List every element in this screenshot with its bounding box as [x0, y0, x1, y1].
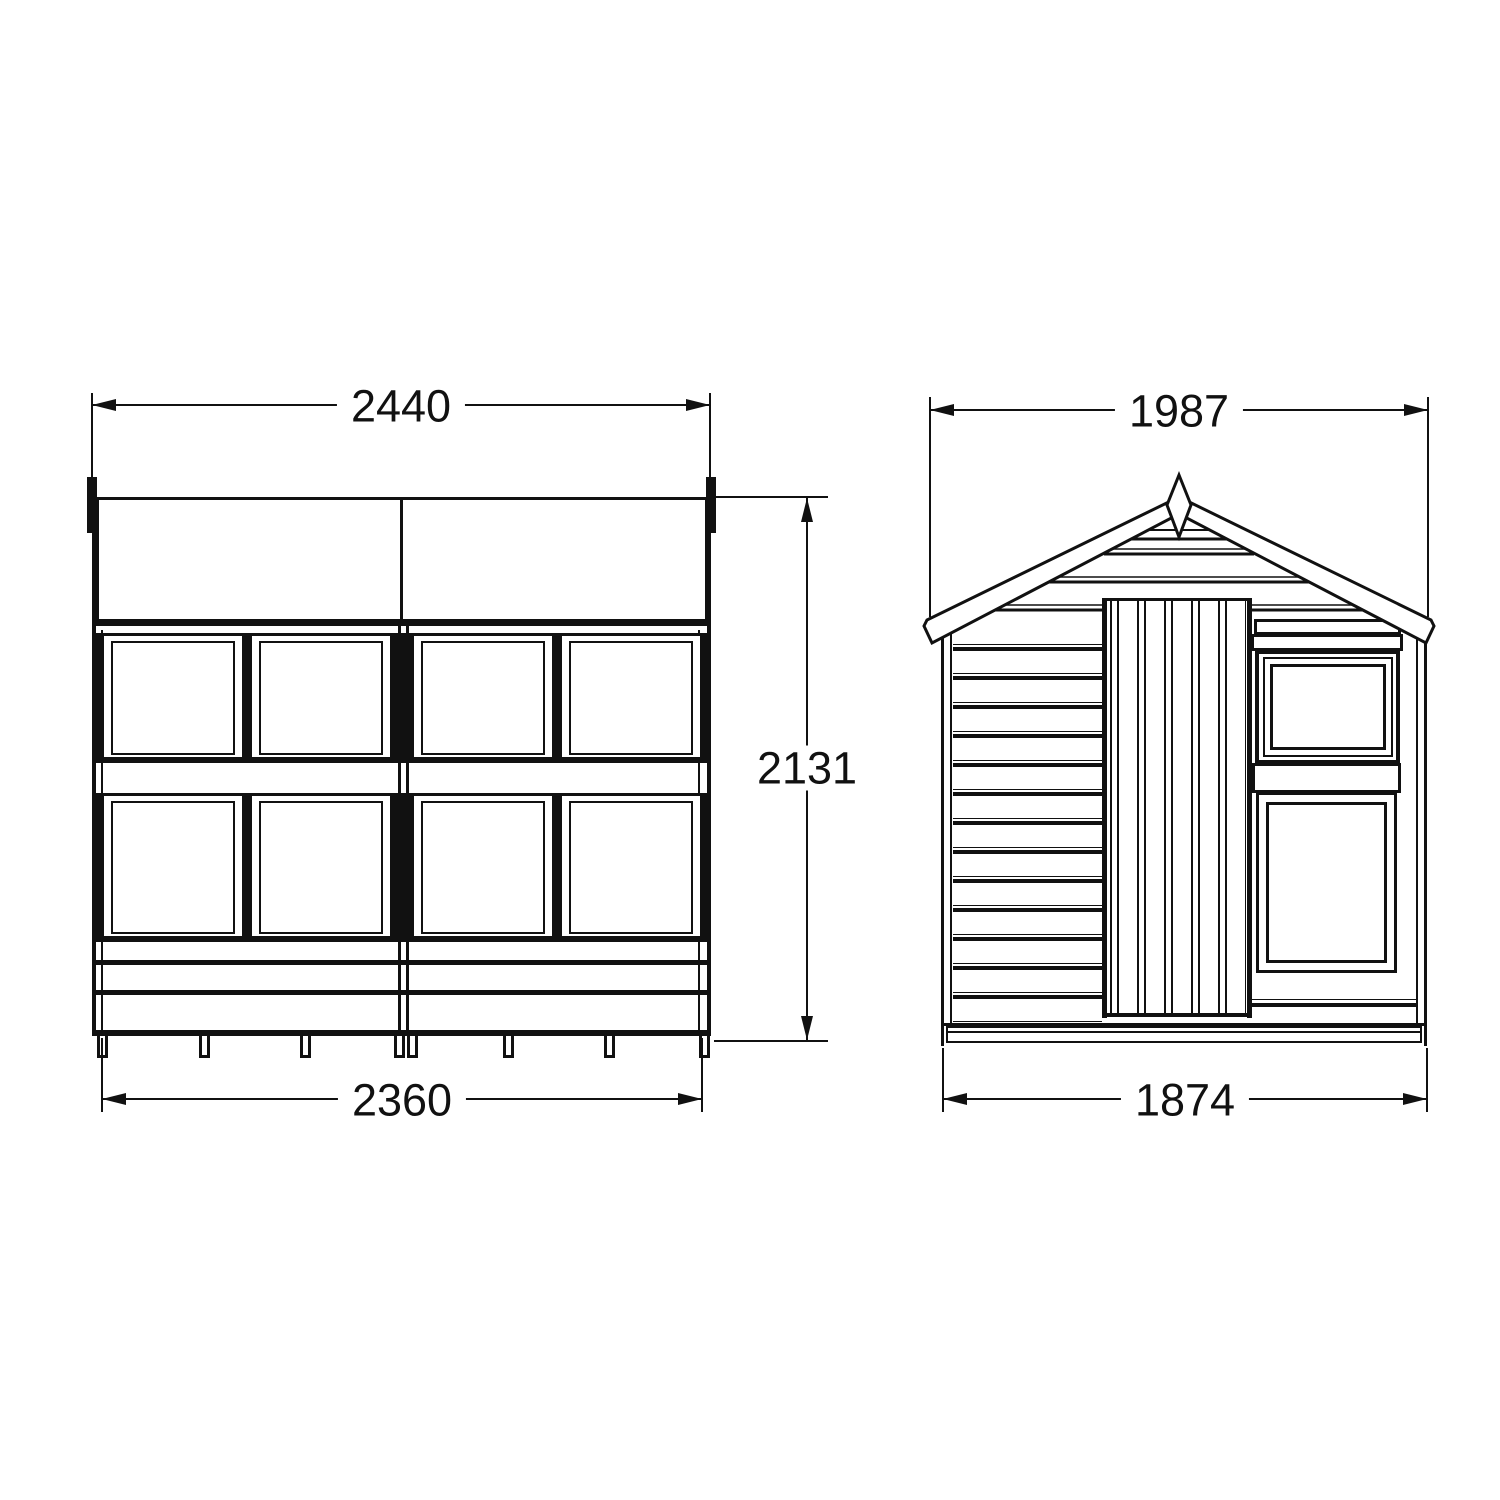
window-rail [1252, 763, 1401, 793]
dimension-arrow [678, 1093, 702, 1105]
window-mullion [242, 793, 252, 942]
dimension-arrow [943, 1093, 967, 1105]
extension-line [714, 1040, 828, 1042]
cladding-board-line [1252, 999, 1416, 1000]
wall-edge-left-inner [950, 624, 952, 1026]
window-stile [700, 793, 708, 942]
window-centre-post [390, 633, 414, 763]
dimension-arrow [686, 399, 710, 411]
dimension-arrow [1404, 404, 1428, 416]
wall-edge-left [941, 620, 944, 1026]
dim-width-bottom: 1874 [1121, 1078, 1249, 1123]
wall-edge-right [1424, 620, 1427, 1026]
bearer-foot [300, 1036, 311, 1058]
base-corner-stub [941, 1026, 944, 1046]
gable-roof [900, 455, 1460, 670]
centre-divider [406, 626, 409, 1036]
window-pane [259, 641, 383, 755]
base-corner-stub [1424, 1026, 1427, 1046]
dim-width-top: 1987 [1115, 389, 1243, 434]
base-rail [946, 1026, 1422, 1043]
bearer-foot [604, 1036, 615, 1058]
dim-height: 2131 [743, 746, 871, 791]
base-rail-line [948, 1031, 1420, 1033]
cladding-board-line [96, 990, 708, 995]
dim-width-bottom: 2360 [338, 1078, 466, 1123]
centre-divider [398, 626, 401, 1036]
window-pane [111, 641, 235, 755]
dimension-arrow [801, 498, 813, 522]
window-centre-post [390, 793, 414, 942]
bargeboard-right [1179, 497, 1434, 643]
bearer-foot [503, 1036, 514, 1058]
wall-edge-right-inner [1416, 624, 1418, 1026]
window-pane [569, 801, 693, 934]
window-stile [96, 793, 104, 942]
dimension-arrow [92, 399, 116, 411]
roof-finial [1167, 475, 1191, 537]
door-sill [1102, 1013, 1252, 1017]
window-stile [96, 633, 104, 763]
cladding-board-line [1252, 1003, 1416, 1007]
window-mullion [552, 793, 562, 942]
window-pane [569, 641, 693, 755]
roof-centre-joint [400, 497, 403, 626]
cladding-left-section [953, 622, 1102, 1024]
bargeboard-left [924, 497, 1179, 643]
dimension-arrow [801, 1016, 813, 1040]
window-mullion [242, 633, 252, 763]
window-pane [111, 801, 235, 934]
dimension-arrow [1403, 1093, 1427, 1105]
window-pane [259, 801, 383, 934]
bearer-foot [394, 1036, 405, 1058]
bearer-foot [199, 1036, 210, 1058]
window-pane [421, 641, 545, 755]
dim-width-top: 2440 [337, 384, 465, 429]
shed-technical-drawing: 2440 [0, 0, 1500, 1500]
lower-panel-inner [1266, 802, 1387, 963]
dimension-arrow [930, 404, 954, 416]
window-pane [421, 801, 545, 934]
bearer-foot [407, 1036, 418, 1058]
window-mullion [552, 633, 562, 763]
dimension-arrow [102, 1093, 126, 1105]
window-glass [1270, 664, 1386, 750]
cladding-board-line [96, 960, 708, 965]
window-stile [700, 633, 708, 763]
